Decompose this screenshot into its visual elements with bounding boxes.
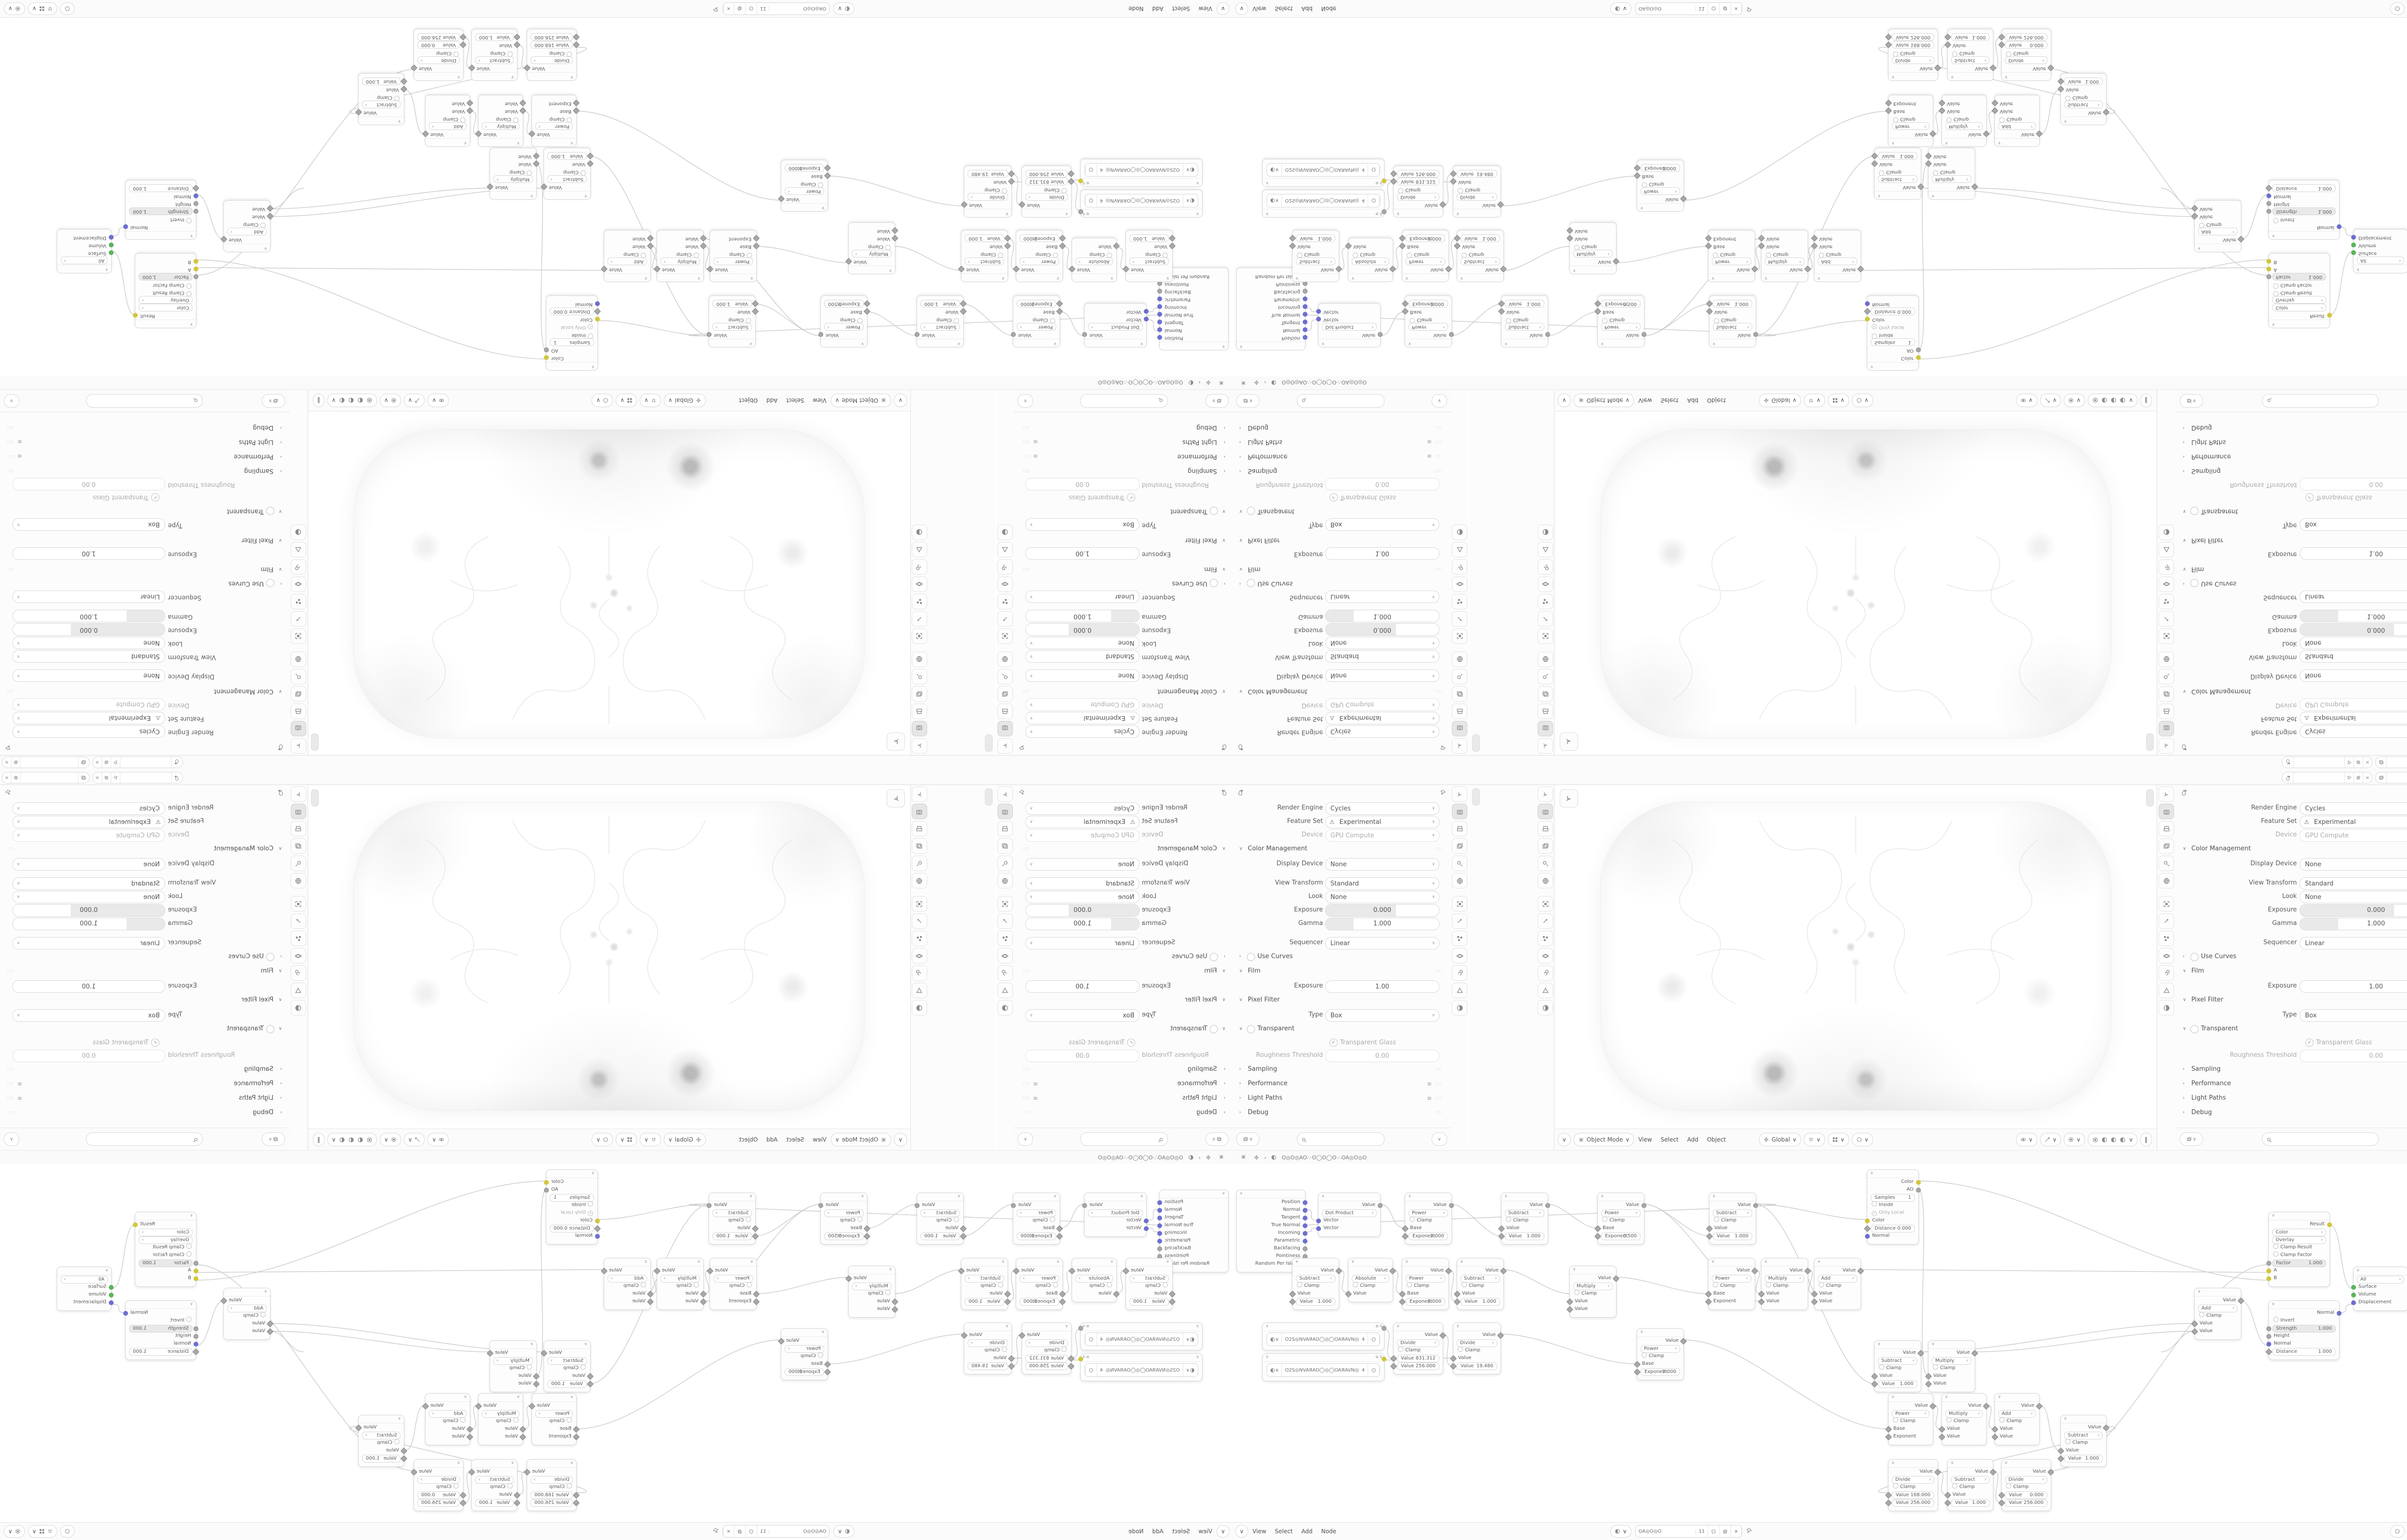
socket-val[interactable] [1885, 107, 1892, 114]
section-sampling[interactable]: ›Sampling∷∷ [1, 1063, 289, 1077]
tab-constraints[interactable] [997, 965, 1013, 981]
section-checkbox[interactable] [1210, 507, 1218, 515]
socket-val[interactable] [1004, 1291, 1011, 1297]
socket-val[interactable] [1992, 1426, 1998, 1433]
clamp-checkbox[interactable] [513, 117, 518, 123]
socket-vec[interactable] [595, 301, 600, 306]
tab-modifiers[interactable] [912, 611, 927, 627]
node-header[interactable]: ∨ [1889, 72, 1938, 80]
prop-slider-exposure[interactable]: 0.000 [13, 904, 165, 917]
section-sampling[interactable]: ›Sampling∷∷ [1232, 1063, 1448, 1077]
node-header[interactable]: ∨ [472, 1460, 517, 1468]
node-power[interactable]: ∨ValuePower∨ClampBaseExponent0.500 [1597, 1193, 1644, 1245]
node-field-value[interactable]: Value1.000 [1129, 1298, 1169, 1306]
socket-val[interactable] [1454, 243, 1461, 249]
node-operation-dropdown[interactable]: Absolute∨ [1352, 257, 1389, 265]
prop-dropdown-feature-set[interactable]: ⚠Experimental∨ [1025, 712, 1139, 724]
unlink-button[interactable]: × [723, 1526, 733, 1537]
scene-selector-name-field[interactable] [2293, 757, 2344, 768]
tab-scene[interactable] [2159, 669, 2174, 684]
node-power[interactable]: ∨ValuePower∨ClampBaseExponent [531, 1393, 577, 1445]
socket-val[interactable] [1998, 34, 2005, 40]
prop-dropdown-display-device[interactable]: None∨ [1025, 858, 1139, 871]
prop-dropdown-look[interactable]: None∨ [1025, 891, 1139, 903]
socket-val[interactable] [2266, 1326, 2271, 1331]
material-id-field[interactable]: ∨O2S◎NVAЯAO◯◎◯OAЯAVN◎S2O4 [1085, 1333, 1198, 1346]
node-header[interactable]: ∨ [1889, 138, 1933, 146]
socket-val[interactable] [700, 235, 707, 242]
node-header[interactable]: ∨ [1022, 1323, 1071, 1331]
socket-col[interactable] [544, 355, 549, 360]
socket-val[interactable] [1566, 1298, 1573, 1305]
socket-col[interactable] [595, 1219, 600, 1223]
prop-dropdown-render-engine[interactable]: Cycles∨ [1325, 725, 1439, 738]
node-field-strength[interactable]: Strength1.000 [2272, 1325, 2336, 1333]
clamp-checkbox[interactable] [2065, 1439, 2071, 1444]
section-film[interactable]: ∨Film∷∷ [1017, 561, 1232, 576]
socket-val[interactable] [1169, 1291, 1176, 1297]
section-performance[interactable]: ›Performance≡∷∷ [1232, 1077, 1448, 1091]
socket-val[interactable] [1613, 258, 1619, 265]
prop-dropdown-sequencer[interactable]: Linear∨ [1025, 937, 1139, 950]
tab-object[interactable] [1452, 629, 1467, 644]
socket-val[interactable] [1008, 1355, 1015, 1362]
socket-vec[interactable] [1316, 1226, 1321, 1231]
editor-menu-button[interactable]: ∨ [1558, 394, 1571, 407]
prop-dropdown-sequencer[interactable]: Linear∨ [1325, 937, 1439, 950]
node-field-value[interactable]: Value256.000 [1397, 170, 1439, 178]
node-header[interactable]: ∨ [359, 1415, 404, 1424]
socket-col[interactable] [2266, 1276, 2271, 1281]
node-field-exponent[interactable]: Exponent2.000 [1020, 234, 1059, 242]
socket-val[interactable] [1642, 1203, 1646, 1208]
socket-vec[interactable] [1303, 304, 1307, 309]
clamp-checkbox[interactable] [1819, 253, 1824, 258]
tab-viewlayer[interactable] [2159, 686, 2174, 702]
node-header[interactable]: ∨ [1405, 1193, 1451, 1201]
node-header[interactable]: ∨ [1570, 1266, 1616, 1274]
node-operation-dropdown[interactable]: Divide∨ [1457, 1339, 1497, 1347]
viewport-menu-add[interactable]: Add [1687, 1136, 1698, 1143]
socket-val[interactable] [1566, 1306, 1573, 1313]
node-field-exponent[interactable]: Exponent2.000 [1409, 1232, 1448, 1240]
node-divide[interactable]: ∨ValueDivide∨ClampValueValue19.480 [964, 1322, 1012, 1374]
section-checkbox[interactable] [266, 507, 274, 515]
scene-selector-icon[interactable] [2282, 772, 2293, 783]
tab-object[interactable] [2159, 629, 2174, 644]
fake-user-button[interactable] [1708, 1526, 1720, 1537]
prop-field-roughness-threshold[interactable]: 0.00 [1025, 1050, 1139, 1062]
socket-val[interactable] [514, 41, 520, 48]
socket-val[interactable] [1871, 1373, 1878, 1380]
node-field-value[interactable]: Value19.480 [968, 1362, 1008, 1370]
socket-val[interactable] [1069, 266, 1075, 272]
viewport-menu-select[interactable]: Select [786, 1136, 804, 1143]
tab-viewlayer[interactable] [1452, 686, 1467, 702]
socket-val[interactable] [1998, 1500, 2005, 1506]
node-operation-dropdown[interactable]: Divide∨ [2005, 56, 2047, 64]
node-field-value[interactable]: Value0.000 [2005, 1491, 2047, 1499]
socket-val[interactable] [2265, 1348, 2272, 1355]
node-field-value[interactable]: Value1.000 [920, 300, 960, 308]
node-header[interactable]: ∨ [1013, 1193, 1060, 1201]
prop-dropdown-type[interactable]: Box∨ [1025, 518, 1139, 531]
section-debug[interactable]: ›Debug∷∷ [1232, 1106, 1448, 1120]
node-subtract[interactable]: ∨ValueSubtract∨ClampValueValue1.000 [544, 1340, 591, 1392]
node-all[interactable]: ∨All∨SurfaceVolumeDisplacement [2353, 229, 2407, 273]
clamp-checkbox[interactable] [260, 223, 266, 228]
socket-vec[interactable] [1144, 1219, 1149, 1223]
socket-val[interactable] [864, 300, 870, 307]
node-header[interactable]: ∨ [126, 231, 196, 239]
tab-object[interactable] [912, 896, 927, 911]
tab-physics[interactable] [291, 948, 306, 963]
socket-val[interactable] [460, 34, 466, 40]
tab-output[interactable] [1452, 704, 1467, 719]
section-pixel-filter[interactable]: ∨Pixel Filter [1232, 993, 1448, 1008]
editor-type-button[interactable]: ∨ [1216, 2, 1229, 15]
prop-dropdown-sequencer[interactable]: Linear∨ [2300, 590, 2407, 603]
node-header[interactable]: ∨ [2354, 265, 2407, 273]
viewlayer-selector-icon[interactable] [78, 772, 89, 783]
nodetree-id-selector[interactable]: OA◎O◎O11× [723, 2, 829, 15]
socket-val[interactable] [573, 1426, 580, 1433]
node-header[interactable]: ∨ [1995, 1394, 2039, 1402]
node-header[interactable]: ∨ [1016, 1258, 1062, 1267]
node-operation-dropdown[interactable]: Subtract∨ [920, 1209, 960, 1217]
unlink-button[interactable]: × [1731, 3, 1741, 14]
socket-vec[interactable] [1303, 1208, 1307, 1213]
node-header[interactable]: ∨ [710, 273, 756, 282]
socket-val[interactable] [529, 1403, 535, 1410]
prop-dropdown-display-device[interactable]: None∨ [1325, 669, 1439, 682]
tab-world[interactable] [291, 652, 306, 667]
socket-val[interactable] [824, 172, 831, 179]
clamp-checkbox[interactable] [1398, 1347, 1403, 1352]
socket-val[interactable] [647, 235, 654, 242]
node-menu-add[interactable]: Add [1301, 5, 1312, 12]
socket-vec[interactable] [595, 1234, 600, 1239]
prop-dropdown-view-transform[interactable]: Standard∨ [1325, 650, 1439, 663]
socket-val[interactable] [1289, 1298, 1296, 1305]
prop-dropdown-feature-set[interactable]: ⚠Experimental∨ [1325, 712, 1439, 724]
socket-val[interactable] [524, 1469, 531, 1476]
checkbox-only-local[interactable]: ✓ [1872, 1211, 1877, 1216]
node-header[interactable]: ∨⧉ 4 [1263, 1354, 1384, 1362]
section-use-curves[interactable]: ›Use Curves [1232, 950, 1448, 964]
node-header[interactable]: ∨ [657, 273, 703, 282]
clamp-checkbox[interactable] [1297, 253, 1302, 258]
scene-selector[interactable] [2282, 772, 2372, 783]
material-id-field[interactable]: ∨O2S◎NVAЯAO◯◎◯OAЯAVN◎S2O4 [1085, 163, 1198, 177]
section-color-management[interactable]: ∨Color Management∷∷ [2176, 842, 2407, 857]
prop-dropdown-render-engine[interactable]: Cycles∨ [13, 802, 165, 815]
socket-val[interactable] [1390, 1363, 1397, 1370]
checkbox[interactable]: ✓ [2305, 493, 2314, 501]
prop-slider-exposure[interactable]: 0.000 [2300, 904, 2407, 917]
proportional-button[interactable]: ∨ [592, 394, 613, 407]
tab-viewlayer[interactable] [291, 686, 306, 702]
node-operation-dropdown[interactable]: Subtract∨ [965, 257, 1004, 265]
socket-val[interactable] [1013, 1268, 1020, 1274]
tab-scene[interactable] [1538, 669, 1553, 684]
tab-output[interactable] [291, 821, 306, 836]
editor-type-button[interactable]: ∨ [1235, 2, 1248, 15]
fake-user-button[interactable] [1368, 1364, 1380, 1376]
viewport-menu-select[interactable]: Select [786, 397, 804, 404]
section-film[interactable]: ∨Film∷∷ [1232, 964, 1448, 979]
node-header[interactable]: ∨ [472, 72, 517, 80]
socket-val[interactable] [2036, 130, 2043, 137]
tab-physics[interactable] [2159, 948, 2174, 963]
socket-val[interactable] [753, 235, 760, 242]
socket-val[interactable] [1885, 1500, 1892, 1506]
node-operation-dropdown[interactable]: Subtract∨ [362, 101, 401, 108]
socket-val[interactable] [1753, 332, 1758, 337]
node-header[interactable]: ∨ [414, 1460, 463, 1468]
socket-val[interactable] [1885, 1492, 1892, 1499]
node-header[interactable]: ∨ [1709, 339, 1756, 347]
tab-object[interactable] [997, 629, 1013, 644]
snap-button[interactable]: ∨ [640, 1133, 661, 1146]
tab-scene[interactable] [997, 856, 1013, 871]
socket-val[interactable] [1378, 1203, 1383, 1208]
section-debug[interactable]: ›Debug∷∷ [1, 1106, 289, 1120]
node-divide[interactable]: ∨ValueDivide∨ClampValue831.312Value256.0… [1393, 1322, 1443, 1374]
socket-val[interactable] [1594, 300, 1601, 307]
orientation-selector[interactable]: Global∨ [1759, 394, 1801, 407]
tab-output[interactable] [912, 821, 927, 836]
socket-val[interactable] [1916, 347, 1921, 352]
gizmos-dropdown[interactable]: ∨ [404, 1133, 425, 1146]
section-use-curves[interactable]: ›Use Curves [2176, 950, 2407, 964]
tab-tool[interactable] [291, 738, 306, 754]
node-power[interactable]: ∨ValuePower∨ClampBaseExponent2.000 [1402, 1258, 1449, 1310]
section-sampling[interactable]: ›Sampling∷∷ [2176, 463, 2407, 477]
node-multiply[interactable]: ∨ValueMultiply∨ClampValueValue [490, 1340, 537, 1392]
properties-search-input[interactable] [1080, 1132, 1167, 1146]
pin-button[interactable] [712, 1527, 719, 1535]
socket-val[interactable] [1450, 1355, 1457, 1362]
socket-sha[interactable] [109, 243, 114, 247]
node-header[interactable]: ∨⧉ 4 [1081, 1354, 1202, 1362]
socket-val[interactable] [1402, 1225, 1409, 1232]
clamp-checkbox[interactable] [818, 182, 823, 188]
section-sampling[interactable]: ›Sampling∷∷ [1017, 463, 1232, 477]
tab-material[interactable] [1452, 525, 1467, 540]
checkbox-inside[interactable] [1872, 334, 1877, 339]
node-operation-dropdown[interactable]: Subtract∨ [547, 175, 587, 183]
socket-val[interactable] [220, 1297, 227, 1304]
clamp-checkbox[interactable] [513, 1417, 518, 1423]
socket-val[interactable] [1680, 195, 1687, 202]
node-operation-dropdown[interactable]: Subtract∨ [1461, 257, 1500, 265]
node-field-value[interactable]: Value1.000 [1296, 1298, 1335, 1306]
users-count-button[interactable]: 11 [757, 3, 769, 14]
prop-field-roughness-threshold[interactable]: 0.00 [1325, 478, 1439, 490]
socket-vec[interactable] [1157, 1239, 1162, 1244]
socket-val[interactable] [1390, 1355, 1397, 1362]
socket-val[interactable] [466, 107, 473, 114]
tab-material[interactable] [912, 525, 927, 540]
node-operation-dropdown[interactable]: Add∨ [608, 1275, 647, 1283]
node-operation-dropdown[interactable]: Subtract∨ [1129, 1275, 1169, 1283]
socket-val[interactable] [422, 130, 429, 137]
node-header[interactable]: ∨ [546, 1170, 597, 1178]
node-all[interactable]: ∨All∨SurfaceVolumeDisplacement [2353, 1267, 2407, 1311]
visibility-dropdown[interactable]: ∨ [2016, 1133, 2037, 1146]
node-operation-dropdown[interactable]: Color∨ [139, 304, 193, 311]
node-field-value[interactable]: Value1.000 [1713, 300, 1752, 308]
node-header[interactable]: ∨⧉ 4 [1263, 1323, 1384, 1331]
clamp-checkbox[interactable] [1574, 245, 1579, 250]
node-header[interactable]: ∨ [964, 209, 1011, 217]
socket-val[interactable] [818, 1203, 823, 1208]
section-film[interactable]: ∨Film∷∷ [2176, 561, 2407, 576]
tab-world[interactable] [2159, 652, 2174, 667]
socket-val[interactable] [892, 227, 898, 234]
section-transparent[interactable]: ∨Transparent [1017, 1022, 1232, 1037]
node-operation-dropdown[interactable]: Subtract∨ [2064, 1432, 2103, 1439]
socket-val[interactable] [1289, 1291, 1296, 1297]
socket-val[interactable] [1078, 1326, 1083, 1331]
clamp-checkbox[interactable] [567, 117, 572, 123]
socket-val[interactable] [1929, 1403, 1936, 1410]
node-header[interactable]: ∨ [546, 362, 597, 370]
orientation-selector[interactable]: Global∨ [664, 1133, 706, 1146]
socket-val[interactable] [573, 107, 580, 114]
tab-output[interactable] [2159, 704, 2174, 719]
display-mode-button[interactable]: ∨ [2180, 394, 2203, 408]
socket-val[interactable] [2036, 1403, 2043, 1410]
tab-physics[interactable] [912, 577, 927, 592]
node-multiply[interactable]: ∨ValueMultiply∨ClampValueValue [1569, 222, 1617, 274]
clamp-checkbox[interactable] [567, 1483, 572, 1489]
node-bump[interactable]: ∨NormalInvertStrength1.000HeightNormalDi… [125, 1300, 196, 1360]
clamp-checkbox[interactable] [1999, 1417, 2005, 1423]
node-header[interactable]: ∨ [126, 1301, 196, 1309]
socket-val[interactable] [2191, 213, 2198, 219]
overlays-dropdown[interactable]: ∨ [2064, 394, 2085, 407]
socket-val[interactable] [752, 1225, 759, 1232]
fake-user-button[interactable] [1708, 3, 1720, 14]
node-subtract[interactable]: ∨ValueSubtract∨ClampValueValue1.000 [1709, 1193, 1756, 1245]
active-tool-button[interactable] [887, 789, 905, 808]
pin-button[interactable] [111, 772, 120, 783]
prop-dropdown-display-device[interactable]: None∨ [13, 669, 165, 682]
socket-col[interactable] [1865, 1219, 1870, 1223]
node-field-value[interactable]: Value256.000 [1025, 170, 1068, 178]
prop-dropdown-look[interactable]: None∨ [1025, 637, 1139, 649]
node-header[interactable]: ∨ [1319, 1193, 1380, 1201]
node-field-exponent[interactable]: Exponent2.000 [1017, 300, 1056, 308]
socket-val[interactable] [1642, 332, 1646, 337]
node-divide[interactable]: ∨ValueDivide∨ClampValue831.312Value256.0… [1393, 166, 1443, 218]
socket-val[interactable] [1399, 243, 1406, 249]
node-field-factor[interactable]: Factor1.000 [2272, 273, 2326, 281]
node-add[interactable]: ∨ValueAdd∨ClampValueValue [425, 95, 470, 147]
users-count[interactable]: 4 [1097, 1333, 1106, 1346]
filter-button[interactable]: ∨ [1018, 1132, 1033, 1146]
shading-material-icon[interactable] [348, 1137, 354, 1143]
node-header[interactable]: ∨ [1072, 273, 1116, 282]
clamp-checkbox[interactable] [857, 318, 863, 323]
node-header[interactable]: ∨ [2269, 1301, 2339, 1309]
clamp-checkbox[interactable] [1053, 1282, 1058, 1287]
socket-val[interactable] [1594, 1233, 1601, 1240]
node-field-value[interactable]: Value256.000 [1025, 1362, 1068, 1370]
tab-render[interactable] [1452, 721, 1467, 736]
node-power[interactable]: ∨ValuePower∨ClampBaseExponent2.000 [781, 1328, 828, 1380]
node-menu-node[interactable]: Node [1128, 5, 1143, 12]
pin-button[interactable] [1746, 1527, 1752, 1535]
clamp-checkbox[interactable] [1893, 1417, 1898, 1423]
node-divide[interactable]: ∨ValueDivide∨ClampValue168.000Value256.0… [527, 29, 577, 81]
section-pixel-filter[interactable]: ∨Pixel Filter [1017, 532, 1232, 547]
node-operation-dropdown[interactable]: Multiply∨ [482, 1410, 519, 1418]
node-operation-dropdown[interactable]: Divide∨ [417, 1476, 460, 1484]
socket-val[interactable] [1289, 235, 1296, 242]
node-add[interactable]: ∨ValueAdd∨ClampValueValue [2194, 200, 2241, 252]
socket-val[interactable] [864, 1233, 870, 1240]
node-menu-add[interactable]: Add [1301, 1528, 1312, 1535]
fake-user-button[interactable] [745, 1526, 757, 1537]
properties-search-input[interactable] [1080, 394, 1167, 408]
node-operation-dropdown[interactable]: Add∨ [227, 228, 267, 235]
node-header[interactable]: ∨ [1405, 339, 1451, 347]
socket-val[interactable] [2266, 274, 2271, 279]
prop-field-exposure[interactable]: 1.00 [2300, 547, 2407, 560]
mode-selector[interactable]: Object Mode∨ [831, 1133, 891, 1146]
socket-val[interactable] [1705, 235, 1712, 242]
clamp-checkbox[interactable] [1061, 1347, 1067, 1352]
clamp-checkbox[interactable] [1819, 1282, 1824, 1287]
node-header[interactable]: ∨ [1072, 1258, 1116, 1267]
node-multiply[interactable]: ∨ValueMultiply∨ClampValueValue [1761, 1258, 1808, 1310]
socket-val[interactable] [915, 332, 919, 337]
socket-val[interactable] [1013, 266, 1020, 272]
section-performance[interactable]: ›Performance≡∷∷ [2176, 449, 2407, 463]
socket-val[interactable] [468, 64, 475, 71]
socket-val[interactable] [1983, 130, 1990, 137]
socket-val[interactable] [818, 332, 823, 337]
prop-dropdown-type[interactable]: Box∨ [13, 1009, 165, 1022]
node-color[interactable]: ∨ResultColor∨Overlay∨Clamp ResultClamp F… [2268, 253, 2330, 328]
node-header[interactable]: ∨⧉ 4 [1081, 178, 1202, 186]
clamp-checkbox[interactable] [1893, 51, 1898, 57]
node-divide[interactable]: ∨ValueDivide∨ClampValueValue19.480 [964, 166, 1012, 218]
clamp-checkbox[interactable] [641, 1282, 646, 1287]
tab-material[interactable] [912, 1000, 927, 1015]
checkbox[interactable]: ✓ [151, 493, 159, 501]
clamp-checkbox[interactable] [527, 170, 532, 176]
socket-val[interactable] [1345, 243, 1352, 249]
node-field-value[interactable]: Value1.000 [1505, 1232, 1544, 1240]
node-header[interactable]: ∨ [1570, 266, 1616, 274]
node-power[interactable]: ∨ValuePower∨ClampBaseExponent2.000 [1013, 1193, 1060, 1245]
node-operation-dropdown[interactable]: Color∨ [2272, 1229, 2326, 1236]
checkbox-clamp-factor[interactable] [186, 1251, 192, 1257]
node-header[interactable]: ∨ [657, 1258, 703, 1267]
socket-val[interactable] [1925, 1373, 1932, 1380]
node-operation-dropdown[interactable]: Power∨ [785, 187, 824, 195]
socket-val[interactable] [1454, 1291, 1461, 1297]
node-subtract[interactable]: ∨ValueSubtract∨ClampValueValue1.000 [2060, 1415, 2107, 1467]
socket-val[interactable] [1449, 1203, 1454, 1208]
clamp-checkbox[interactable] [1107, 1282, 1112, 1287]
node-field-value[interactable]: Value256.000 [1397, 1362, 1439, 1370]
socket-val[interactable] [529, 130, 535, 137]
